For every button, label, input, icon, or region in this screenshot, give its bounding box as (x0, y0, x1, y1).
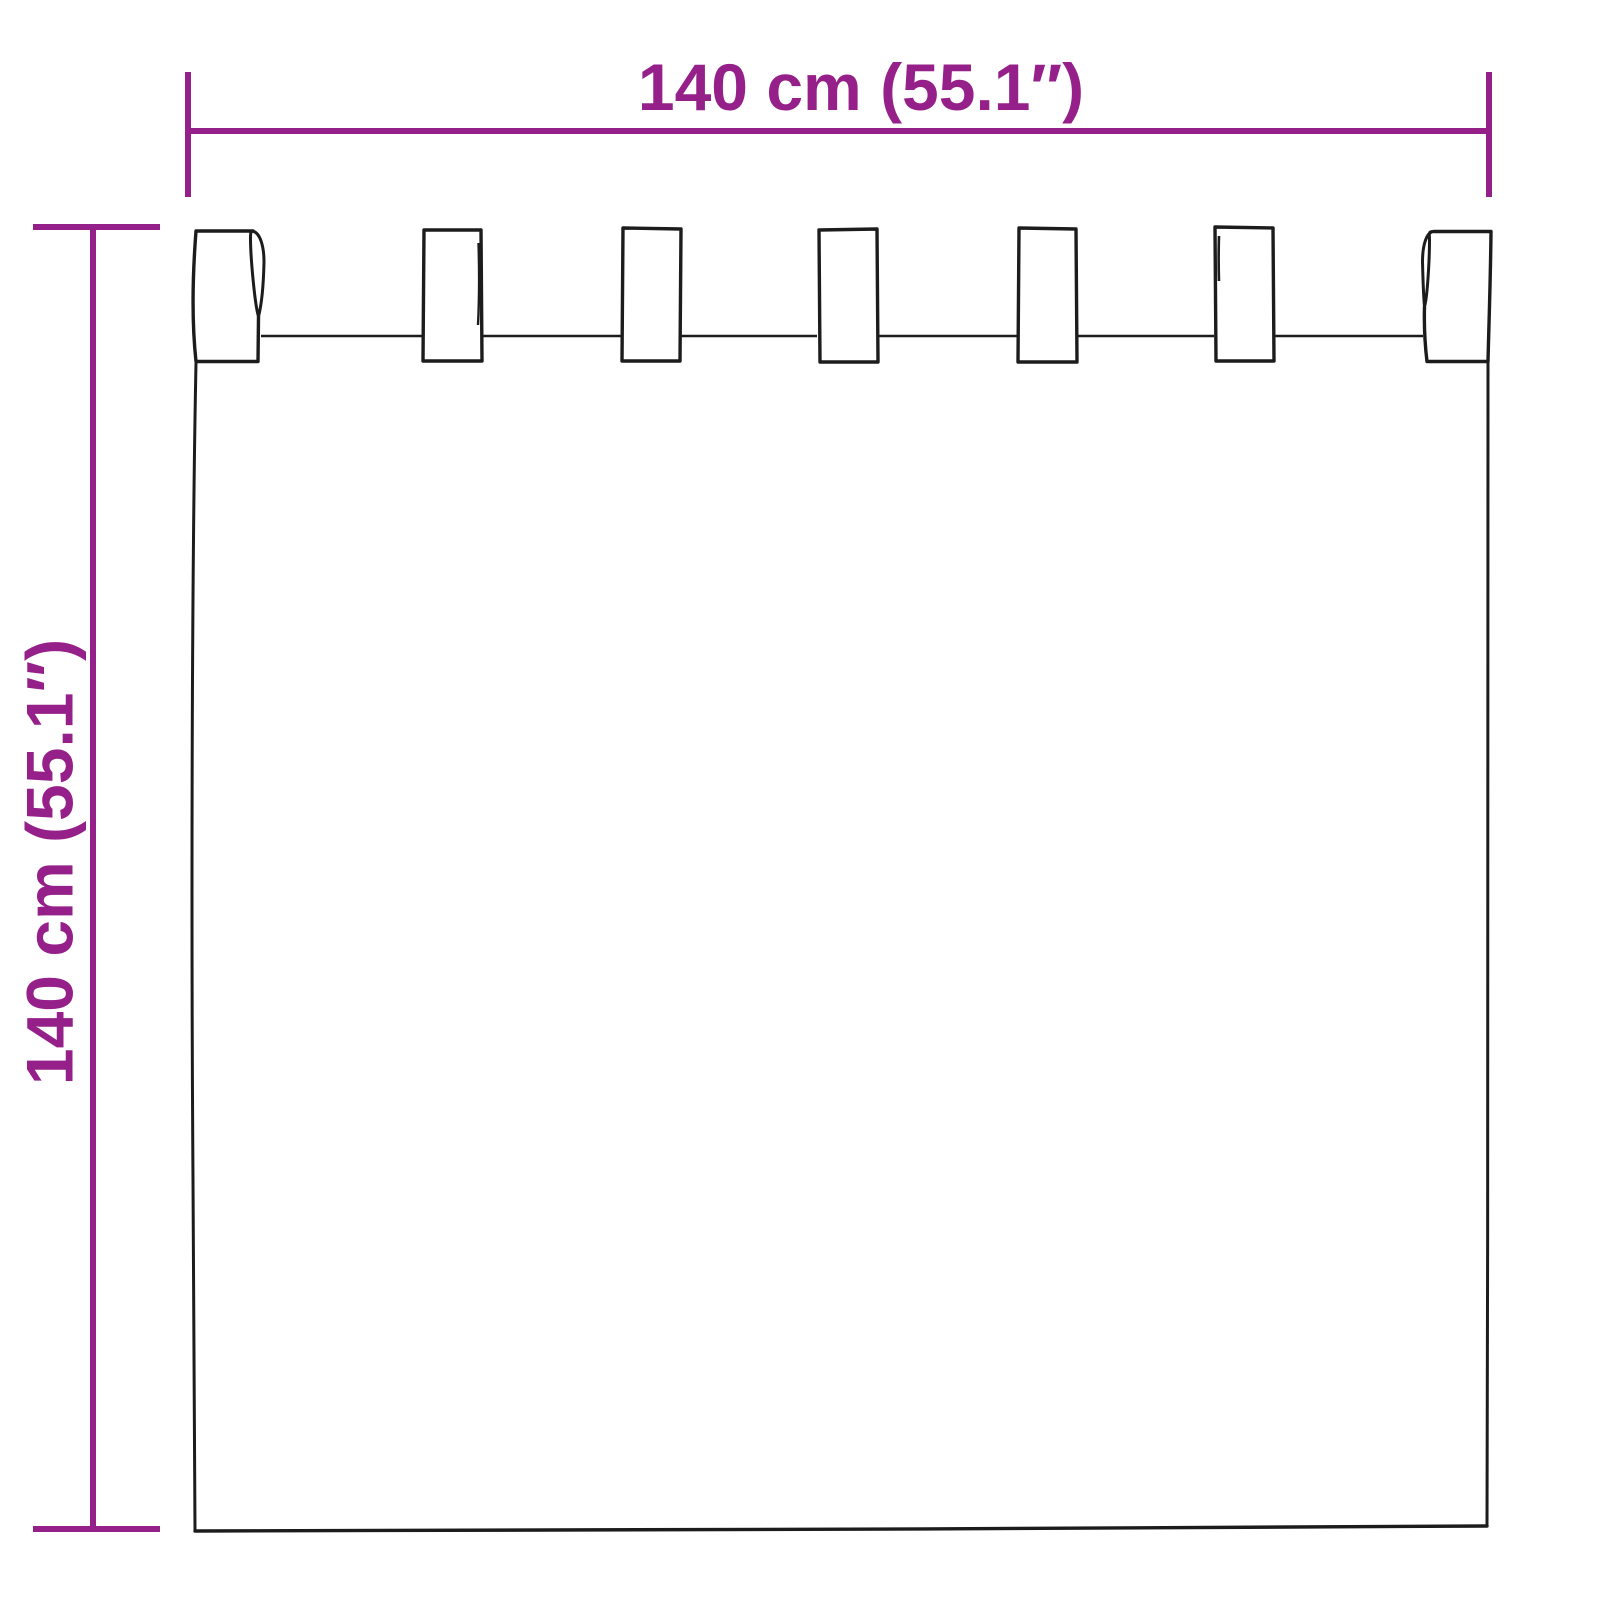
svg-text:140 cm (55.1″): 140 cm (55.1″) (638, 50, 1084, 124)
svg-text:140 cm (55.1″): 140 cm (55.1″) (13, 639, 87, 1085)
